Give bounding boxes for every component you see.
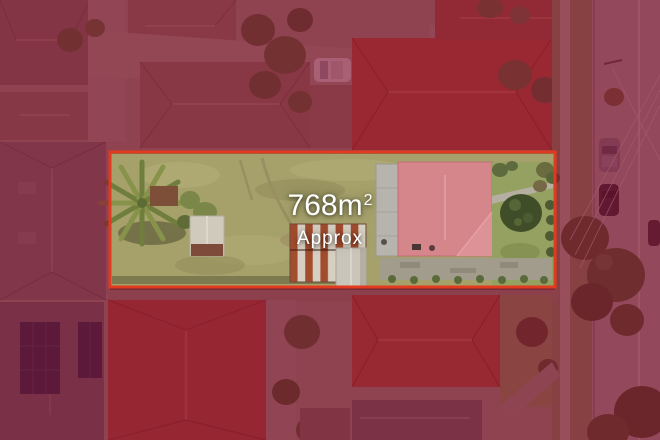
aerial-scene xyxy=(0,0,660,440)
property-lot xyxy=(101,152,560,287)
garden-shed-brown xyxy=(150,186,178,206)
carport-roof xyxy=(376,164,398,256)
garden-shed-white xyxy=(190,216,224,256)
round-bush xyxy=(500,194,542,232)
aerial-property-photo: 768m2 Approx xyxy=(0,0,660,440)
outbuilding xyxy=(336,248,366,286)
main-house-roof xyxy=(398,162,492,256)
